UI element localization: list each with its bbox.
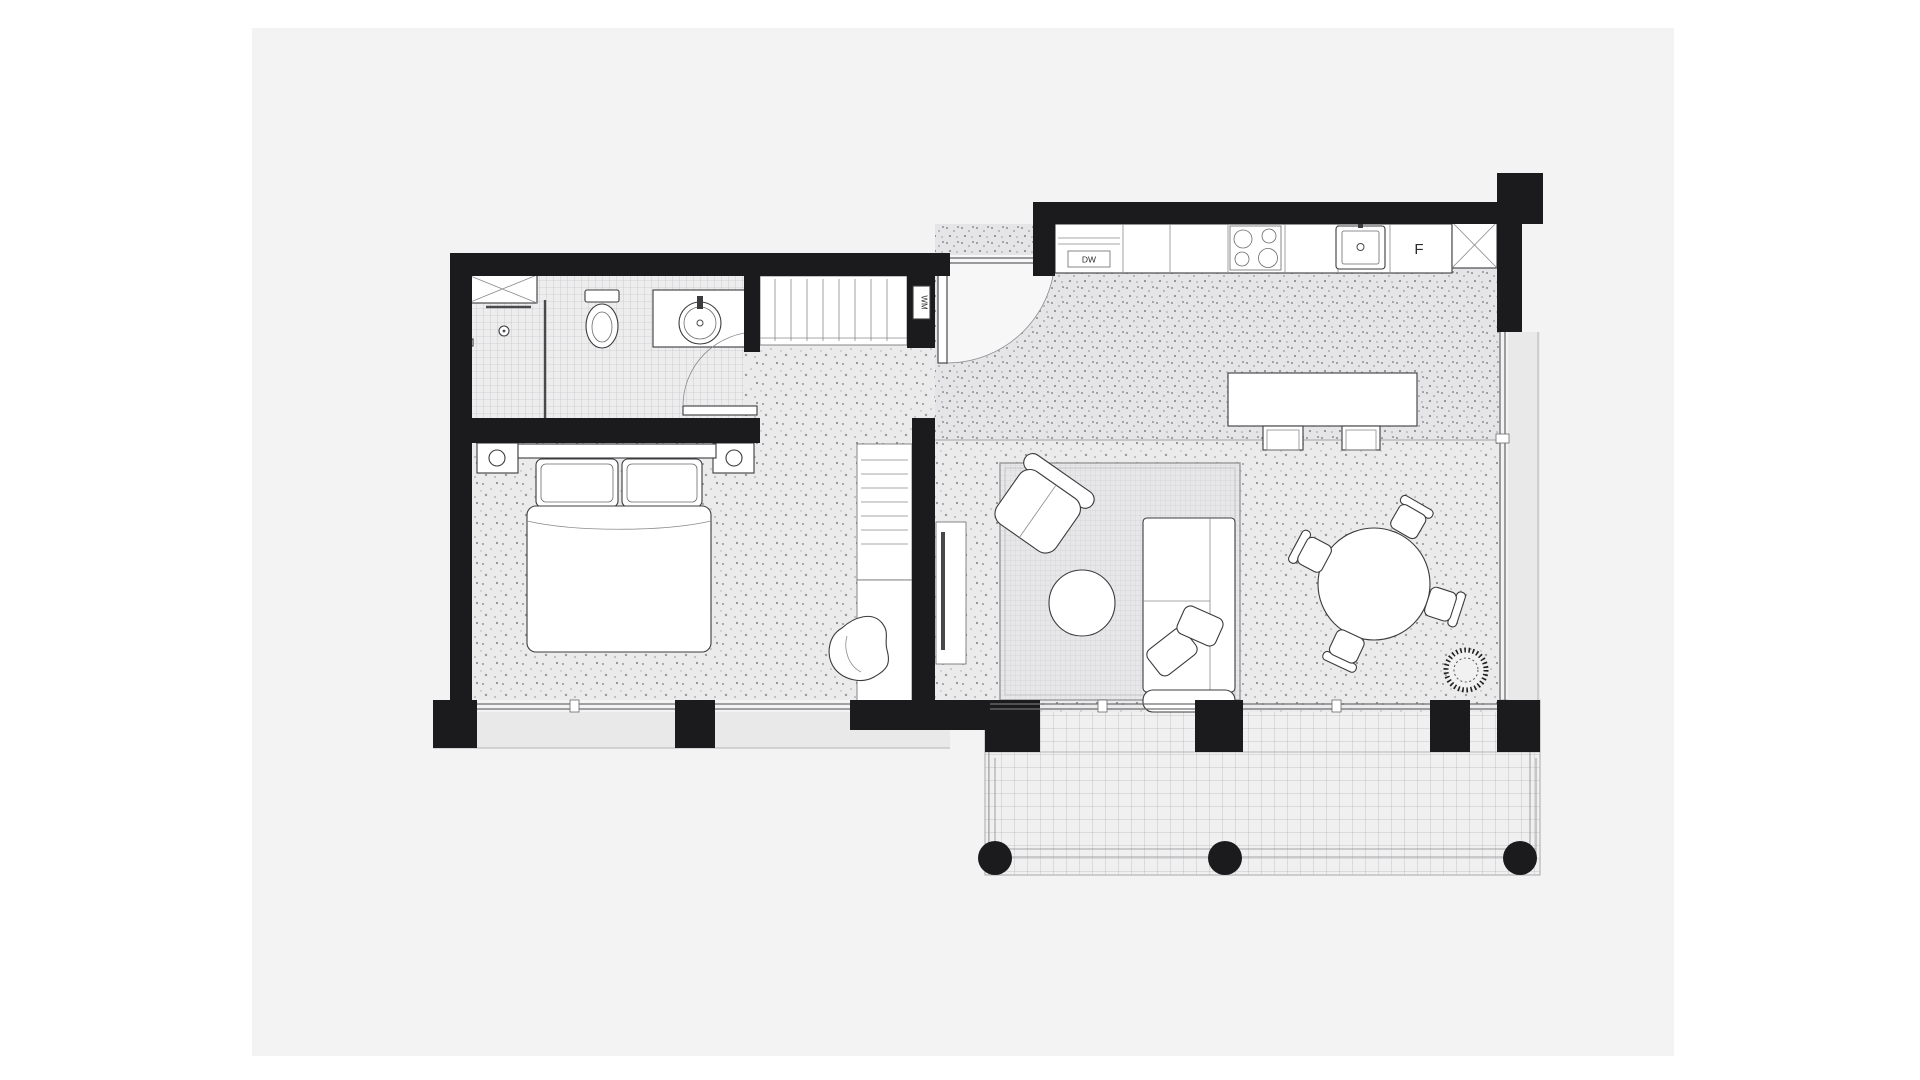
wall-kitchen-top	[1033, 202, 1543, 224]
washing-machine-niche: WM	[913, 286, 930, 319]
fridge-cell: F	[1414, 241, 1423, 258]
wall-left	[450, 253, 472, 713]
pier-top-right	[1497, 173, 1543, 224]
tv-icon	[941, 532, 945, 650]
bedroom-doorway-floor	[912, 348, 935, 418]
wall-stub-vanity	[744, 276, 760, 352]
coffee-table	[1049, 570, 1115, 636]
nightstand-right	[713, 443, 754, 473]
faucet-icon	[697, 296, 703, 309]
right-exterior-band	[1508, 332, 1540, 700]
burner-icon	[1262, 229, 1276, 243]
sofa	[1143, 518, 1235, 712]
nightstand-left	[477, 443, 518, 473]
island-stool	[1342, 426, 1380, 450]
wall-partition	[912, 418, 935, 712]
burner-icon	[1259, 249, 1278, 268]
lamp-icon	[726, 450, 742, 466]
wall-top-bathroom	[450, 253, 950, 276]
mullion	[570, 700, 579, 712]
duvet	[527, 506, 711, 652]
pier-balcony-right	[1430, 700, 1470, 752]
balcony-round-column	[978, 841, 1012, 875]
burner-icon	[1234, 230, 1252, 248]
built-in-wardrobe	[857, 444, 912, 580]
floor-plan: DW F	[0, 0, 1920, 1080]
dining-table	[1318, 528, 1430, 640]
hall-closet	[760, 276, 907, 345]
shaft-box	[468, 275, 537, 303]
pier-bottom-right	[1497, 700, 1540, 752]
wall-bathroom-bedroom	[450, 418, 760, 443]
cooktop	[1230, 226, 1281, 270]
lamp-icon	[489, 450, 505, 466]
toilet	[585, 290, 619, 348]
pier-balcony-left	[985, 700, 1040, 752]
pier-bedroom-left	[433, 700, 477, 748]
door-leaf	[683, 406, 757, 415]
pier-bedroom-mid	[675, 700, 715, 748]
potted-plant	[1446, 650, 1486, 690]
balcony-round-column	[1503, 841, 1537, 875]
island-stool	[1263, 426, 1303, 450]
double-bed	[518, 444, 716, 652]
vanity-sink	[653, 290, 745, 347]
burner-icon	[1235, 252, 1249, 266]
tv-sideboard	[936, 522, 966, 664]
closet-body	[760, 276, 907, 345]
wall-bottom-bar	[850, 700, 990, 730]
dishwasher-box: DW	[1068, 251, 1110, 267]
fridge-label: F	[1414, 241, 1423, 258]
mullion	[1496, 434, 1509, 443]
pier-balcony-mid	[1195, 700, 1243, 752]
washing-machine-label: WM	[920, 295, 929, 310]
kitchen-shaft-box	[1452, 222, 1497, 268]
plant-icon	[1446, 650, 1486, 690]
dishwasher-label: DW	[1082, 255, 1096, 265]
balcony-round-column	[1208, 841, 1242, 875]
headboard	[518, 444, 716, 458]
island-table	[1228, 373, 1417, 426]
mullion	[1332, 700, 1341, 712]
mullion	[1098, 700, 1107, 712]
pier-right	[1497, 224, 1522, 332]
